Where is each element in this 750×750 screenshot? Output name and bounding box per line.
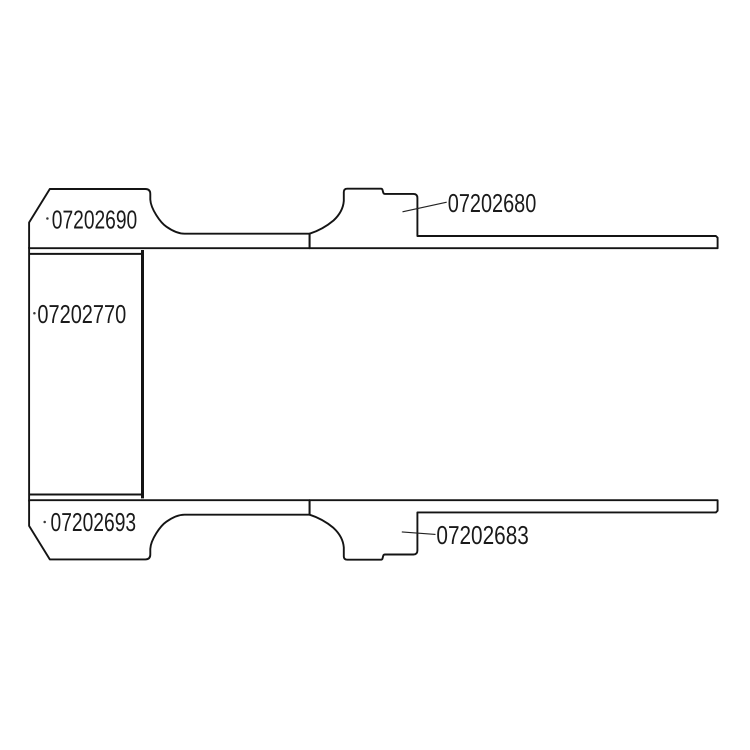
svg-text:07202680: 07202680 xyxy=(448,188,537,218)
svg-text:07202693: 07202693 xyxy=(51,507,137,537)
svg-text:07202770: 07202770 xyxy=(37,299,126,329)
svg-text:07202690: 07202690 xyxy=(52,205,137,235)
svg-text:07202683: 07202683 xyxy=(436,520,528,550)
